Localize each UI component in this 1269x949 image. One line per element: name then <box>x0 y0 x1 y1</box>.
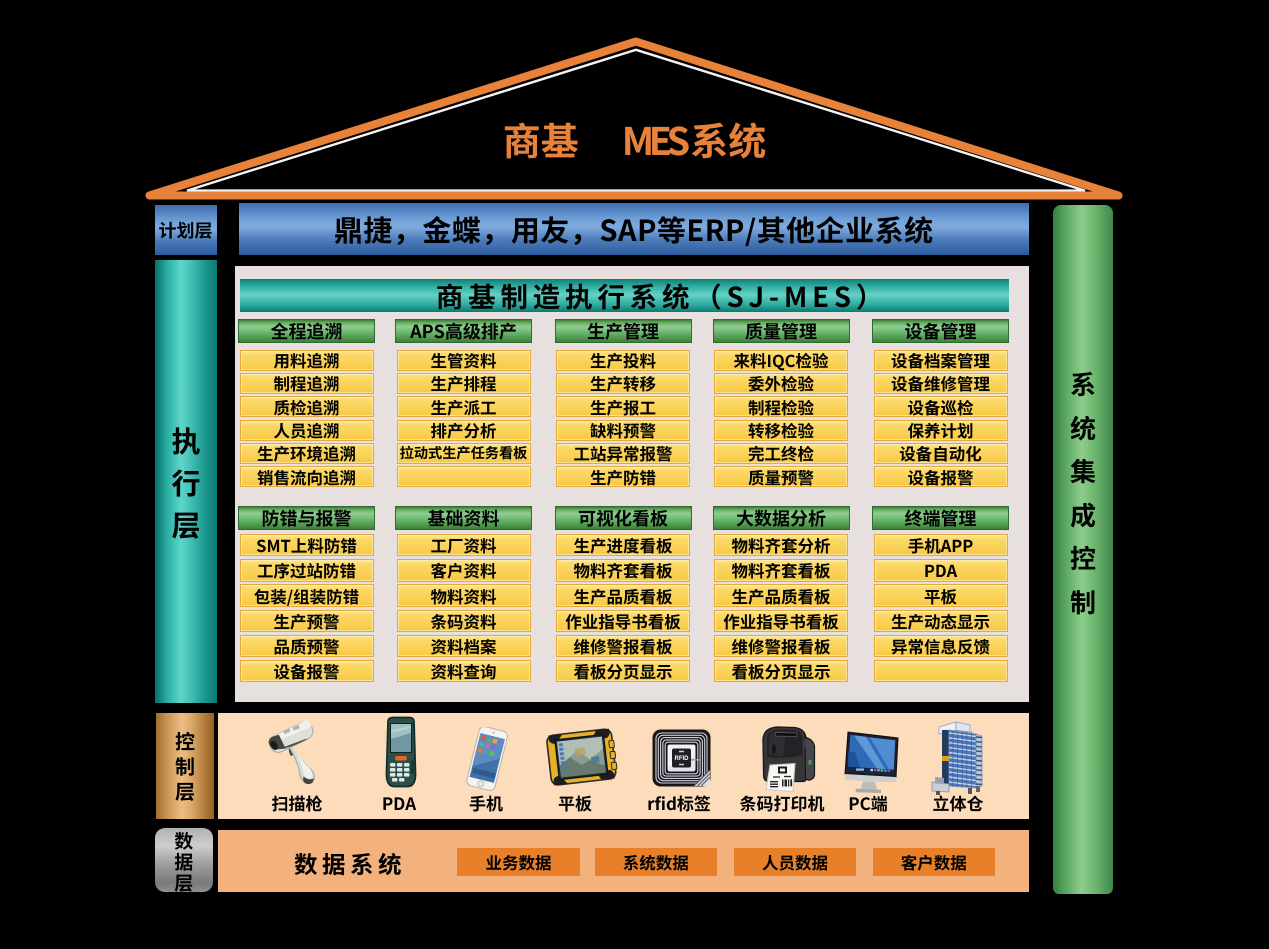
svg-text:RFID: RFID <box>675 756 690 762</box>
